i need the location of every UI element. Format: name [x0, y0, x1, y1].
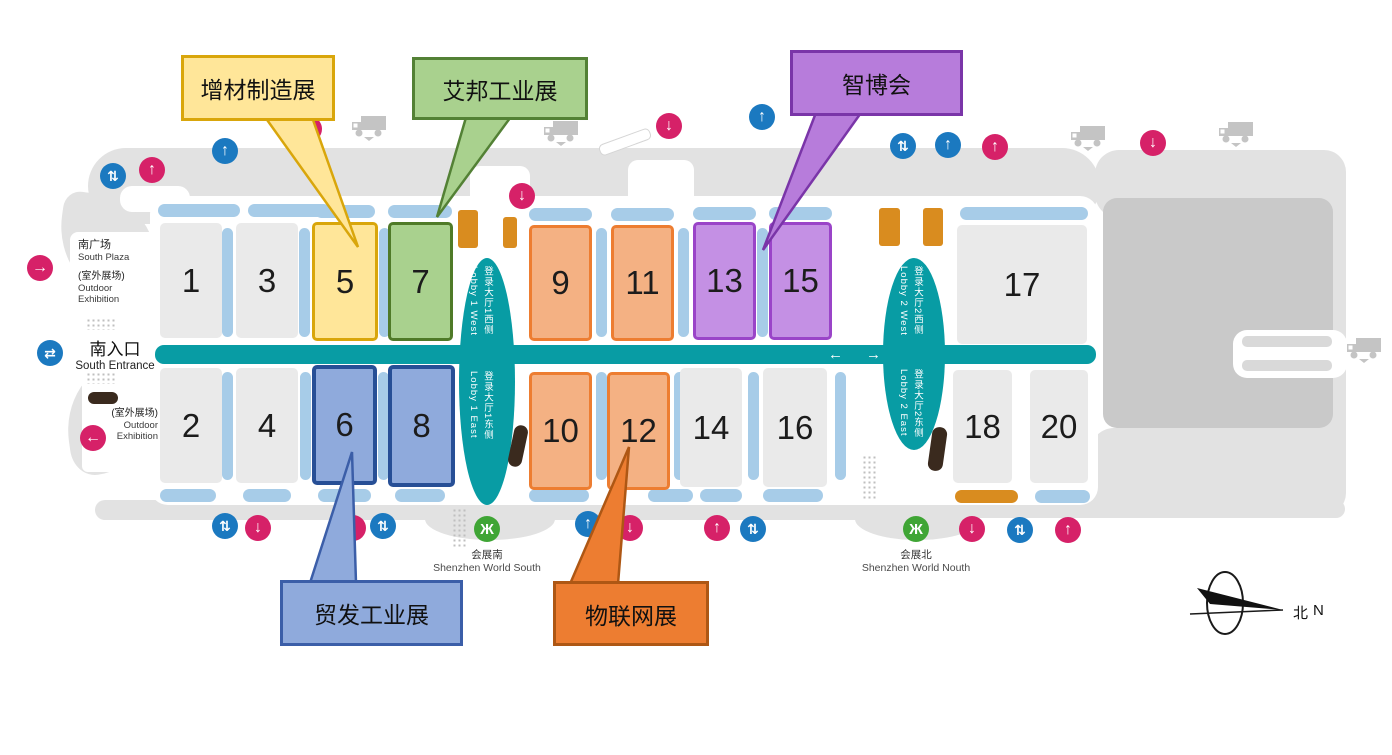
amber-platform-bar — [955, 490, 1018, 503]
outdoor-exhibition-en1: Outdoor — [98, 420, 158, 432]
platform-bar — [395, 489, 445, 502]
aibang-callout: 艾邦工业展 — [412, 57, 588, 120]
platform-bar — [693, 207, 756, 220]
compass-north-cn: 北 — [1293, 602, 1308, 623]
outdoor-exhibition-en1: Outdoor — [78, 283, 158, 295]
down-arrow-icon: ↓ — [1140, 130, 1166, 156]
hall-divider — [835, 372, 846, 480]
truck-icon — [1345, 336, 1383, 364]
up-arrow-icon: ↑ — [935, 132, 961, 158]
south-plaza-cn: 南广场 — [78, 240, 158, 252]
updown-arrows-icon: ⇅ — [212, 513, 238, 539]
platform-bar — [769, 207, 832, 220]
hall-11: 11 — [611, 225, 674, 341]
right-arrow-icon: → — [27, 255, 53, 281]
station-north-en: Shenzhen World Nouth — [846, 562, 986, 574]
lobby-2-east-en: Lobby 2 East — [898, 369, 909, 438]
zhibo-callout: 智博会 — [790, 50, 963, 116]
up-arrow-icon: ↑ — [749, 104, 775, 130]
hall-divider — [300, 372, 311, 480]
hall-5: 5 — [312, 222, 378, 341]
hall-divider — [678, 228, 689, 337]
hall-divider — [596, 228, 607, 337]
metro-icon: Ж — [474, 516, 500, 542]
truck-icon — [1217, 120, 1255, 148]
hall-8: 8 — [388, 365, 455, 487]
south-entrance-label: 南入口 South Entrance — [70, 335, 160, 372]
station-north-cn: 会展北 — [846, 547, 986, 562]
updown-arrows-icon: ⇅ — [100, 163, 126, 189]
right-notch-bar — [1242, 336, 1332, 347]
platform-bar — [1035, 490, 1090, 503]
outdoor-exhibition-en2: Exhibition — [98, 431, 158, 443]
updown-arrows-icon: ⇅ — [890, 133, 916, 159]
down-arrow-icon: ↓ — [340, 515, 366, 541]
hall-18: 18 — [953, 370, 1012, 483]
down-arrow-icon: ↓ — [617, 515, 643, 541]
central-corridor — [155, 345, 1096, 364]
hall-divider — [222, 372, 233, 480]
hall-13: 13 — [693, 222, 756, 340]
paving-dots — [86, 318, 116, 330]
truck-icon — [542, 119, 580, 147]
down-arrow-icon: ↓ — [245, 515, 271, 541]
outdoor-exhibition-cn: (室外展场) — [98, 408, 158, 420]
hall-2: 2 — [160, 368, 222, 483]
updown-arrows-icon: ⇅ — [1007, 517, 1033, 543]
hall-3: 3 — [236, 223, 298, 338]
right-notch-bar — [1242, 360, 1332, 371]
platform-bar — [648, 489, 693, 502]
platform-bar — [529, 208, 592, 221]
compass-north-en: N — [1313, 602, 1324, 623]
left-arrow-icon: ← — [80, 425, 106, 451]
platform-bar — [529, 489, 589, 502]
lobby-1-west-label: Lobby 1 West 登录大厅1西侧 — [468, 266, 493, 336]
down-arrow-icon: ↓ — [959, 516, 985, 542]
paving-dots — [452, 508, 466, 548]
down-arrow-icon: ↓ — [656, 113, 682, 139]
lobby-1-east-en: Lobby 1 East — [468, 371, 479, 440]
station-south-label: 会展南 Shenzhen World South — [417, 547, 557, 574]
south-plaza-label: 南广场 South Plaza (室外展场) Outdoor Exhibitio… — [78, 240, 158, 306]
lobby-2-west-en: Lobby 2 West — [898, 266, 909, 336]
kiosk-blob — [88, 392, 118, 404]
hall-divider — [757, 228, 768, 337]
hall-17: 17 — [957, 225, 1087, 344]
outdoor-exhibition-en2: Exhibition — [78, 294, 158, 306]
hall-10: 10 — [529, 372, 592, 490]
platform-bar — [763, 489, 823, 502]
hall-15: 15 — [769, 222, 832, 340]
platform-bar — [388, 205, 452, 218]
floor-map: 1 3 5 7 9 11 13 15 17 2 4 6 8 10 12 14 1… — [0, 0, 1392, 755]
outdoor-exhibition-cn: (室外展场) — [78, 271, 158, 283]
paving-dots — [862, 455, 876, 500]
up-arrow-icon: ↑ — [982, 134, 1008, 160]
updown-arrows-icon: ⇅ — [740, 516, 766, 542]
truck-icon — [1069, 124, 1107, 152]
amber-bar — [923, 208, 943, 246]
roof-slot — [628, 160, 694, 208]
hall-9: 9 — [529, 225, 592, 341]
leftright-arrows-icon: ⇄ — [37, 340, 63, 366]
lobby-2-west-cn: 登录大厅2西侧 — [912, 266, 923, 336]
lobby-2-east-label: Lobby 2 East 登录大厅2东侧 — [898, 369, 923, 438]
corridor-right-arrow: → — [866, 346, 881, 363]
platform-bar — [315, 205, 375, 218]
amber-bar — [879, 208, 900, 246]
platform-bar — [243, 489, 291, 502]
hall-12: 12 — [607, 372, 670, 490]
platform-bar — [611, 208, 674, 221]
hall-14: 14 — [680, 368, 742, 487]
corridor-left-arrow: ← — [828, 346, 843, 363]
down-arrow-icon: ↓ — [509, 183, 535, 209]
hall-7: 7 — [388, 222, 453, 341]
updown-arrows-icon: ⇅ — [370, 513, 396, 539]
up-arrow-icon: ↑ — [1055, 517, 1081, 543]
maofa-callout: 贸发工业展 — [280, 580, 463, 646]
up-arrow-icon: ↑ — [139, 157, 165, 183]
lobby-2-east-cn: 登录大厅2东侧 — [912, 369, 923, 438]
up-arrow-icon: ↑ — [575, 511, 601, 537]
hall-divider — [299, 228, 310, 337]
hall19-block — [1103, 198, 1333, 428]
iot-callout: 物联网展 — [553, 581, 709, 646]
lobby-1-east-cn: 登录大厅1东侧 — [482, 371, 493, 440]
lobby-1-west-en: Lobby 1 West — [468, 266, 479, 336]
up-arrow-icon: ↑ — [704, 515, 730, 541]
hall-20: 20 — [1030, 370, 1088, 483]
platform-bar — [318, 489, 371, 502]
additive-callout: 增材制造展 — [181, 55, 335, 121]
south-plaza-en: South Plaza — [78, 252, 158, 264]
platform-bar — [700, 489, 742, 502]
hall-4: 4 — [236, 368, 298, 483]
hall-divider — [222, 228, 233, 337]
amber-bar — [458, 210, 478, 248]
up-arrow-icon: ↑ — [212, 138, 238, 164]
south-entrance-en: South Entrance — [70, 360, 160, 372]
lobby-2-west-label: Lobby 2 West 登录大厅2西侧 — [898, 266, 923, 336]
station-south-cn: 会展南 — [417, 547, 557, 562]
platform-bar — [960, 207, 1088, 220]
amber-bar — [503, 217, 517, 248]
outdoor-exhibition-label-2: (室外展场) Outdoor Exhibition — [98, 408, 158, 443]
compass-icon — [1180, 552, 1310, 652]
compass-label: 北 N — [1293, 602, 1324, 623]
platform-bar — [158, 204, 240, 217]
hall-1: 1 — [160, 223, 222, 338]
lobby-1-west-cn: 登录大厅1西侧 — [482, 266, 493, 336]
metro-icon: Ж — [903, 516, 929, 542]
station-south-en: Shenzhen World South — [417, 562, 557, 574]
lobby-1-east-label: Lobby 1 East 登录大厅1东侧 — [468, 371, 493, 440]
paving-dots — [86, 372, 116, 384]
station-north-label: 会展北 Shenzhen World Nouth — [846, 547, 986, 574]
hall-6: 6 — [312, 365, 377, 485]
south-entrance-cn: 南入口 — [70, 335, 160, 360]
truck-icon — [350, 114, 388, 142]
hall-divider — [596, 372, 607, 480]
hall-16: 16 — [763, 368, 827, 487]
hall-divider — [748, 372, 759, 480]
platform-bar — [160, 489, 216, 502]
